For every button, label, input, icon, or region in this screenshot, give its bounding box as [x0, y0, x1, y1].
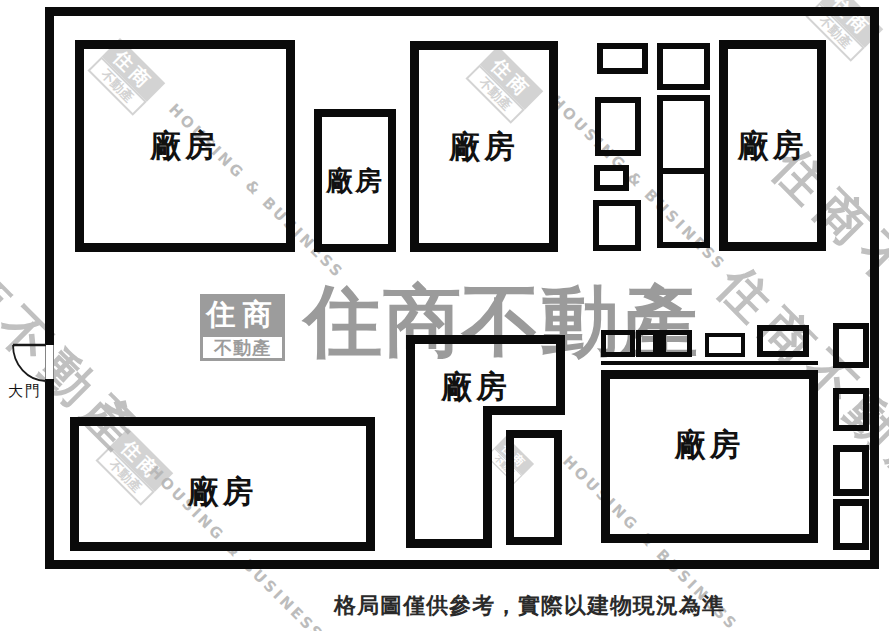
room-label: 廠房	[326, 163, 384, 199]
partition-rect	[833, 323, 869, 368]
thin-wall-line	[601, 361, 818, 365]
partition-rect	[601, 330, 635, 357]
partition-rect	[833, 499, 869, 550]
partition-rect	[757, 325, 809, 357]
room-top-right: 廠房	[719, 40, 826, 251]
room-label: 廠房	[150, 125, 220, 167]
disclaimer-caption: 格局圖僅供參考，實際以建物現況為準	[334, 591, 725, 621]
room-bottom-right: 廠房	[601, 370, 818, 543]
partition-rect	[593, 200, 641, 251]
partition-divider	[653, 334, 666, 353]
partition-rect	[657, 95, 710, 174]
partition-rect	[597, 43, 648, 74]
partition-rect	[636, 330, 692, 357]
partition-rect	[595, 97, 641, 156]
room-label: 廠房	[675, 424, 745, 466]
main-gate-label: 大門	[8, 382, 42, 401]
room-bottom-middle-label-wrap: 廠房	[400, 366, 552, 408]
room-label: 廠房	[738, 125, 808, 167]
room-bottom-left: 廠房	[70, 417, 375, 551]
room-top-middle: 廠房	[410, 41, 558, 252]
partition-rect	[833, 445, 869, 496]
room-label: 廠房	[188, 471, 258, 513]
partition-rect	[594, 165, 629, 191]
partition-rect	[657, 43, 710, 90]
floorplan-canvas: 住商不動產 住商 不動產 住商 不動產 住商 不動產 住商 不動產 住商 不動產…	[0, 0, 889, 631]
partition-rect	[657, 168, 710, 248]
room-top-small: 廠房	[314, 109, 396, 252]
partition-rect	[705, 333, 745, 357]
room-label: 廠房	[449, 126, 519, 168]
partition-rect	[833, 388, 869, 431]
room-label: 廠房	[441, 368, 511, 404]
partition-rect	[506, 430, 562, 545]
room-top-left: 廠房	[75, 40, 295, 252]
